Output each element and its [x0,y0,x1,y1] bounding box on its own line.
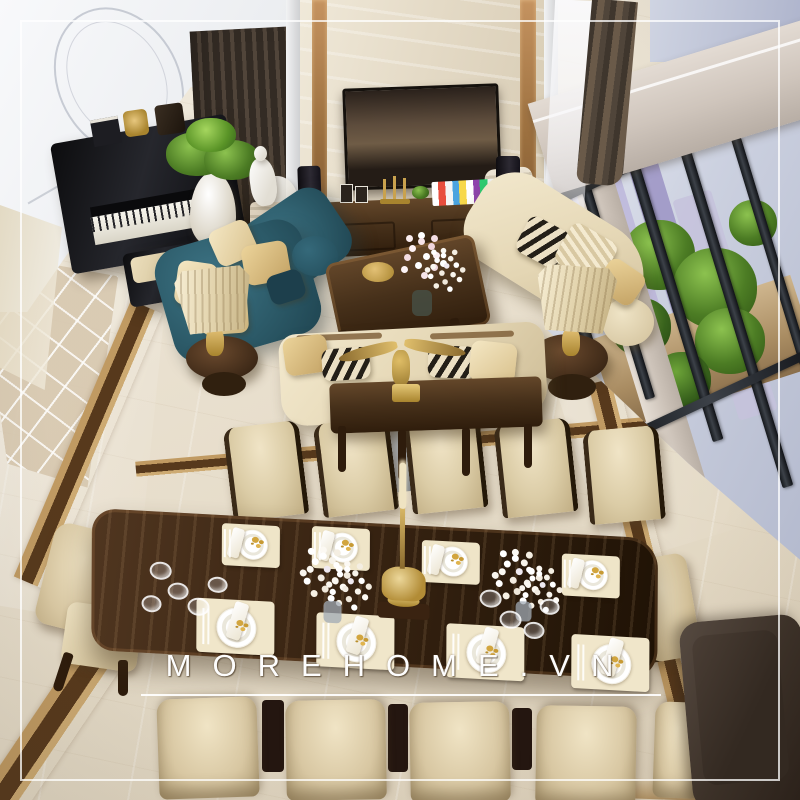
watermark-text: MOREHOME.VN [0,648,800,684]
watermark-underline [141,694,661,696]
interior-render-photo: MOREHOME.VN [0,0,800,800]
